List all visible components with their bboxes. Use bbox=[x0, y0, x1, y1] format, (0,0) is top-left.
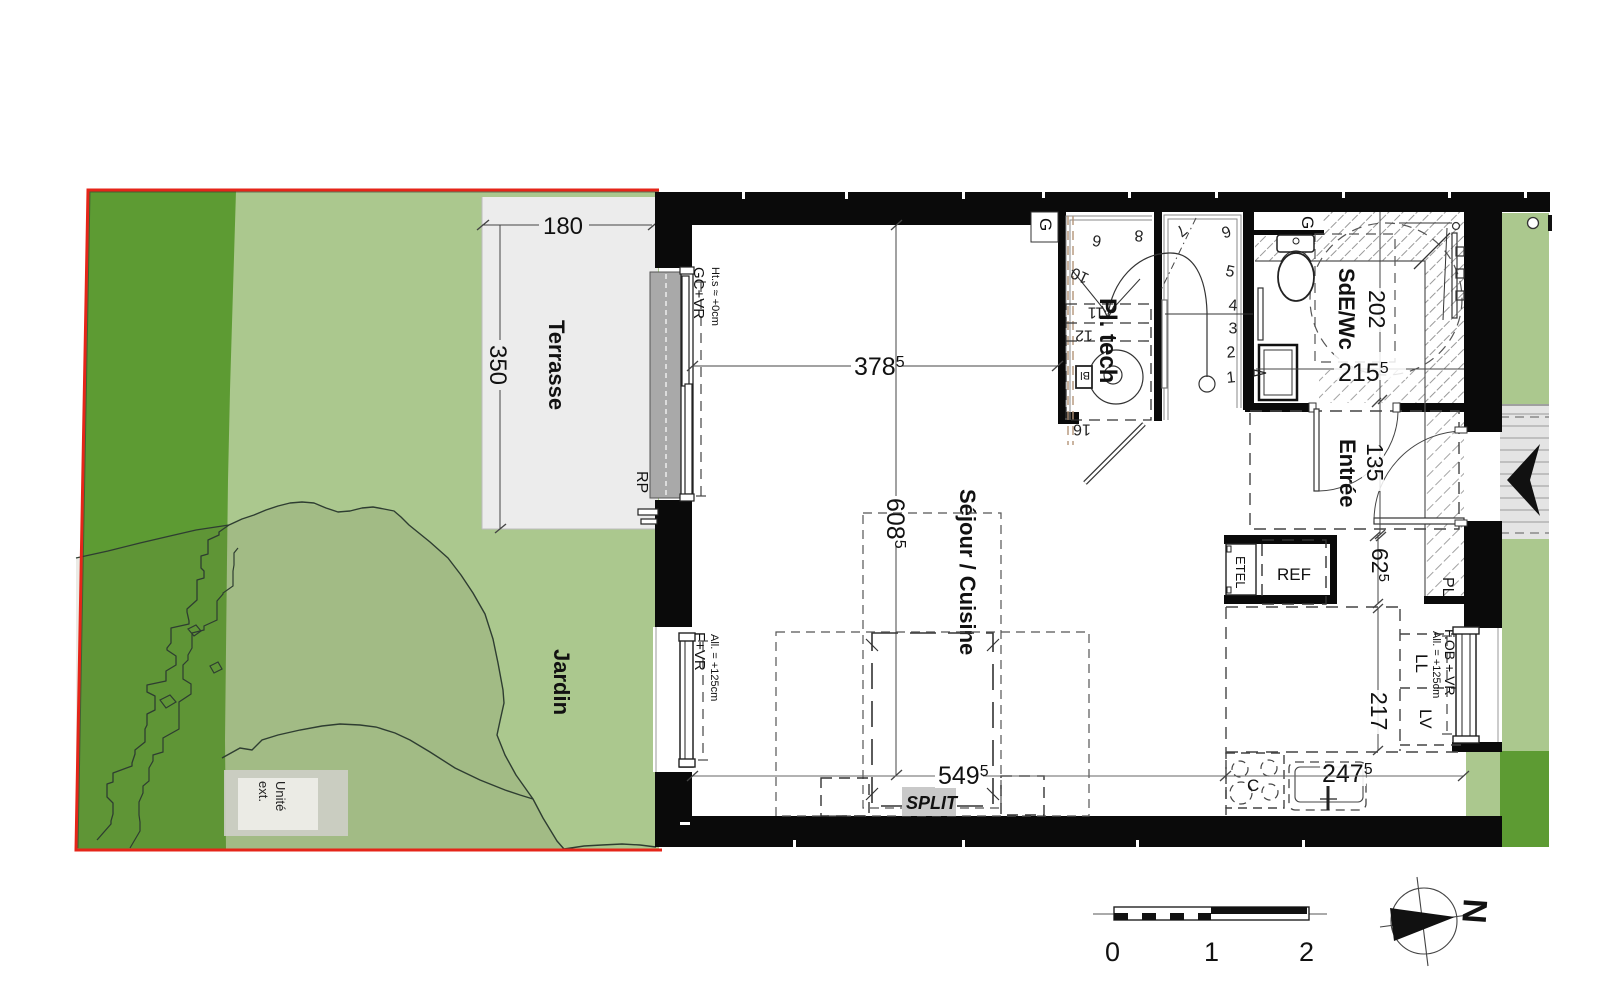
svg-text:Bl: Bl bbox=[1080, 369, 1090, 381]
svg-text:350: 350 bbox=[484, 345, 511, 385]
svg-text:GC+VR: GC+VR bbox=[690, 267, 707, 319]
svg-text:8: 8 bbox=[1134, 226, 1144, 243]
svg-text:G: G bbox=[1298, 216, 1317, 229]
svg-text:C: C bbox=[1247, 776, 1259, 795]
svg-text:4: 4 bbox=[1228, 297, 1238, 315]
svg-text:ext.: ext. bbox=[256, 781, 271, 802]
svg-text:SdE/Wc: SdE/Wc bbox=[1334, 268, 1359, 350]
svg-text:N: N bbox=[1454, 897, 1494, 924]
svg-text:Pl. tech: Pl. tech bbox=[1094, 298, 1121, 383]
svg-text:REF: REF bbox=[1277, 565, 1311, 584]
svg-text:PL: PL bbox=[1439, 577, 1456, 597]
svg-text:G: G bbox=[1036, 218, 1055, 231]
svg-text:LL: LL bbox=[1412, 654, 1431, 673]
svg-text:2: 2 bbox=[1299, 937, 1314, 967]
svg-text:180: 180 bbox=[543, 213, 583, 240]
svg-text:1: 1 bbox=[1226, 369, 1237, 387]
svg-text:Unité: Unité bbox=[273, 781, 288, 811]
svg-text:RP: RP bbox=[633, 471, 650, 493]
svg-text:Ht.s ≈ +0cm: Ht.s ≈ +0cm bbox=[709, 267, 721, 326]
svg-text:0: 0 bbox=[1105, 937, 1120, 967]
svg-text:1: 1 bbox=[1204, 937, 1219, 967]
svg-text:16: 16 bbox=[1073, 421, 1091, 438]
svg-text:202: 202 bbox=[1364, 290, 1390, 328]
svg-text:2: 2 bbox=[1226, 344, 1236, 362]
svg-text:All. = +125cm: All. = +125cm bbox=[1430, 631, 1442, 698]
svg-text:3: 3 bbox=[1229, 321, 1238, 338]
svg-text:Entrée: Entrée bbox=[1335, 439, 1360, 507]
svg-text:Séjour / Cuisine: Séjour / Cuisine bbox=[955, 489, 980, 655]
svg-text:LV: LV bbox=[1416, 709, 1435, 729]
svg-text:Jardin: Jardin bbox=[549, 649, 574, 715]
svg-text:12: 12 bbox=[1075, 327, 1093, 344]
svg-text:All. = +125cm: All. = +125cm bbox=[708, 634, 720, 701]
svg-text:217: 217 bbox=[1366, 692, 1392, 730]
svg-text:ETEL: ETEL bbox=[1233, 556, 1248, 589]
svg-text:F+VR: F+VR bbox=[691, 632, 708, 671]
svg-text:SPLIT: SPLIT bbox=[906, 793, 959, 813]
svg-text:Terrasse: Terrasse bbox=[544, 320, 569, 410]
svg-text:135: 135 bbox=[1362, 443, 1388, 481]
